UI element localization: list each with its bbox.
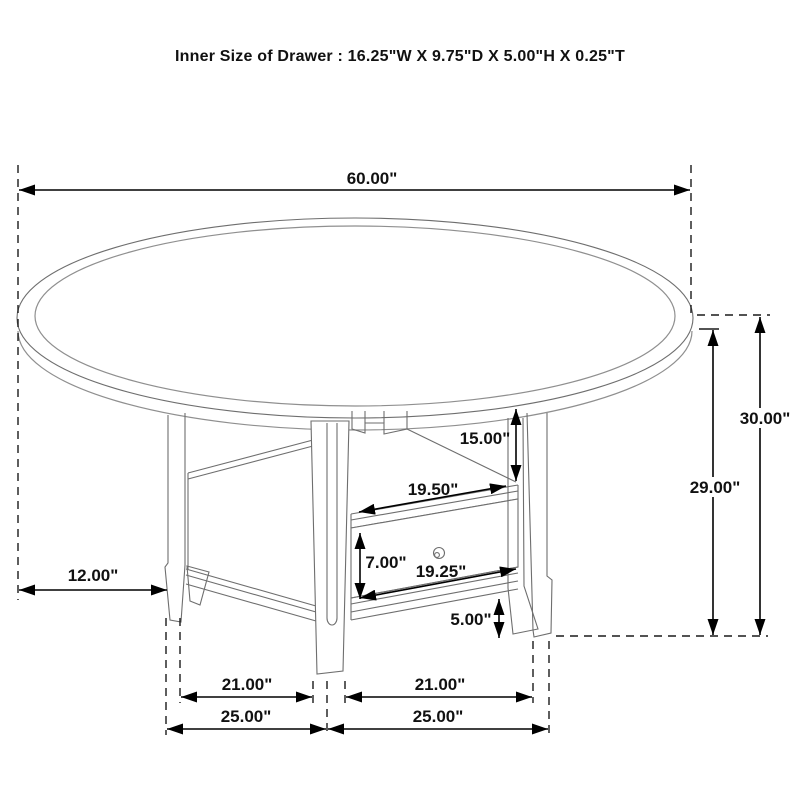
dim-label-overall-height: 30.00" [740,409,791,428]
right-rear-leg [527,413,552,637]
dim-label-base-span-right: 25.00" [413,707,464,726]
dim-label-base-span-left: 25.00" [221,707,272,726]
dim-label-shelf-opening-height: 15.00" [460,429,511,448]
dim-label-tabletop-overhang: 12.00" [68,566,119,585]
center-leg [311,421,349,674]
drawer [351,499,518,598]
dim-label-drawer-face-width: 19.25" [416,562,467,581]
dim-label-leg-spacing-left: 21.00" [222,675,273,694]
dim-label-shelf-opening-width: 19.50" [408,480,459,499]
dim-label-leg-spacing-right: 21.00" [415,675,466,694]
dim-label-tabletop-diameter: 60.00" [347,169,398,188]
table-drawing: 60.00" 30.00" 29.00" 15.00" 19.50" 7.00"… [0,0,800,800]
dim-label-underside-height: 29.00" [690,478,741,497]
table-base [165,411,552,674]
technical-drawing-page: Inner Size of Drawer : 16.25"W X 9.75"D … [0,0,800,800]
left-side-panel [186,440,316,621]
table-top [17,218,693,430]
dim-label-drawer-face-height: 7.00" [365,553,406,572]
dim-label-bottom-rail-clearance: 5.00" [450,610,491,629]
left-leg [165,413,209,622]
